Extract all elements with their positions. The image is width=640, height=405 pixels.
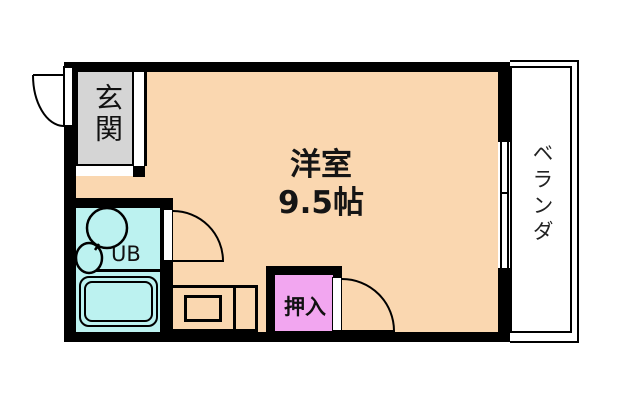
bathtub-inner	[84, 281, 153, 322]
veranda-rail-top	[510, 60, 579, 62]
kitchen-sink	[184, 295, 222, 322]
veranda-label: ベランダ	[527, 142, 557, 246]
veranda-rail-bottom	[510, 341, 579, 343]
bath-door-leaf	[163, 209, 173, 261]
front-door-swing-arc	[33, 75, 63, 126]
entrance-step-gap-horizontal	[76, 166, 134, 176]
wall-right-upper	[498, 62, 510, 142]
wall-bath-top	[64, 198, 173, 208]
kitchen-counter-divider	[233, 285, 236, 332]
window-right	[500, 142, 509, 268]
main-room-size: 9.5帖	[253, 184, 389, 222]
bath-divider-line	[96, 269, 160, 272]
window-center-tick	[500, 192, 509, 194]
wall-top	[64, 62, 510, 72]
closet-label: 押入	[277, 291, 333, 321]
entrance-partition-post	[133, 166, 145, 177]
entrance-label: 玄関	[87, 83, 127, 145]
veranda-rail-right	[577, 60, 579, 343]
unit-bath-label: UB	[111, 242, 141, 266]
main-room-name: 洋室	[253, 146, 389, 184]
floorplan: 玄関 UB 押入 ベランダ 洋室 9.5帖	[0, 0, 640, 405]
entrance-partition-line	[144, 72, 147, 166]
closet-door-leaf	[332, 277, 342, 331]
wall-right-lower	[498, 268, 510, 342]
front-door-leaf	[63, 66, 74, 127]
entrance-step-gap-vertical	[134, 72, 144, 176]
wall-bottom	[64, 332, 510, 342]
main-room-label: 洋室 9.5帖	[253, 146, 389, 222]
